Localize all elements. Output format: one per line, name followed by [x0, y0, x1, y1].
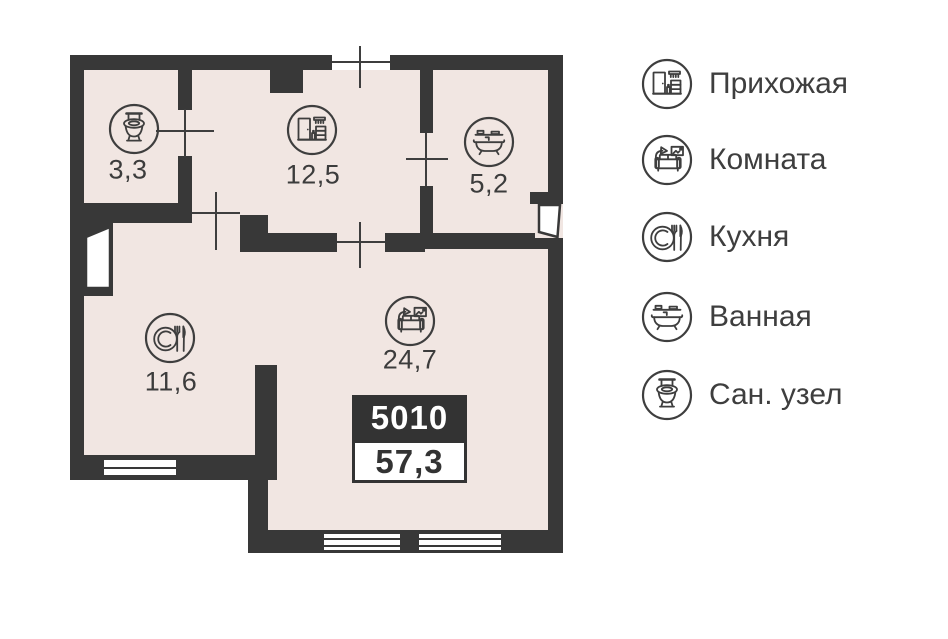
wall: [420, 186, 433, 233]
room-area-label: 3,3: [108, 155, 147, 186]
legend-item: Ванная: [641, 291, 812, 343]
total-area-badge: 57,3: [352, 440, 467, 483]
kitchen-icon: [144, 312, 196, 364]
unit-number-badge: 5010: [352, 395, 467, 440]
legend-item: Сан. узел: [641, 369, 843, 421]
axis-mark: [337, 241, 385, 243]
wall: [548, 238, 563, 553]
window: [417, 532, 503, 552]
window: [322, 532, 402, 552]
room-icon: [641, 134, 693, 186]
room-icon: [384, 295, 436, 347]
room-area-label: 11,6: [145, 367, 198, 398]
wall: [255, 365, 277, 457]
legend-label: Кухня: [709, 220, 789, 254]
wall: [420, 70, 433, 133]
room-area-label: 24,7: [383, 345, 438, 376]
kitchen-icon: [641, 211, 693, 263]
legend-label: Ванная: [709, 300, 812, 334]
axis-mark: [406, 158, 448, 160]
wall: [248, 530, 563, 553]
legend-item: Прихожая: [641, 58, 848, 110]
door-leaf: [82, 222, 114, 292]
wall: [248, 478, 268, 553]
wall: [70, 55, 563, 70]
toilet-icon: [641, 369, 693, 421]
wall: [270, 70, 303, 93]
legend-label: Комната: [709, 143, 826, 177]
bath-icon: [463, 116, 515, 168]
window: [102, 458, 178, 477]
hallway-icon: [641, 58, 693, 110]
axis-mark: [425, 133, 427, 186]
axis-mark: [184, 109, 186, 157]
room-area-label: 5,2: [469, 169, 508, 200]
axis-mark: [215, 192, 217, 250]
door-leaf: [534, 200, 564, 242]
hallway-icon: [286, 104, 338, 156]
toilet-icon: [108, 103, 160, 155]
wall: [548, 70, 563, 192]
bath-icon: [641, 291, 693, 343]
legend-label: Прихожая: [709, 67, 848, 101]
legend-item: Комната: [641, 134, 826, 186]
floor-plan: 3,3 12,5 5,2 11,6 24,7 5010 57,3: [0, 0, 640, 639]
legend-label: Сан. узел: [709, 378, 843, 412]
room-area-label: 12,5: [286, 160, 341, 191]
legend-item: Кухня: [641, 211, 789, 263]
axis-mark: [332, 61, 390, 63]
axis-mark: [192, 212, 240, 214]
axis-mark: [359, 222, 361, 268]
axis-mark: [359, 46, 361, 88]
